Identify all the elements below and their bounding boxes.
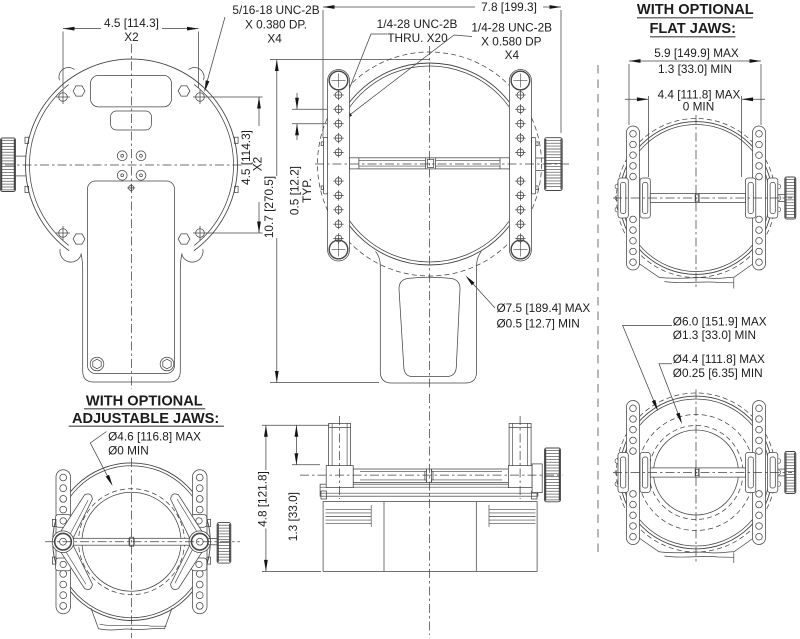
svg-text:Ø7.5 [189.4] MAX: Ø7.5 [189.4] MAX: [497, 301, 591, 315]
svg-text:ADJUSTABLE JAWS:: ADJUSTABLE JAWS:: [72, 411, 219, 427]
svg-text:1/4-28 UNC-2B: 1/4-28 UNC-2B: [471, 21, 552, 35]
svg-text:4.8 [121.8]: 4.8 [121.8]: [255, 471, 269, 527]
svg-text:5/16-18 UNC-2B: 5/16-18 UNC-2B: [232, 3, 319, 17]
svg-text:TYP.: TYP.: [300, 178, 314, 203]
svg-text:X 0.580 DP: X 0.580 DP: [481, 35, 541, 49]
svg-text:1/4-28 UNC-2B: 1/4-28 UNC-2B: [377, 17, 458, 31]
svg-text:10.7 [270.5]: 10.7 [270.5]: [262, 176, 276, 238]
svg-text:X2: X2: [124, 30, 138, 44]
svg-text:WITH OPTIONAL: WITH OPTIONAL: [637, 2, 754, 18]
svg-text:Ø4.6 [116.8] MAX: Ø4.6 [116.8] MAX: [108, 430, 201, 444]
svg-text:Ø0.5 [12.7] MIN: Ø0.5 [12.7] MIN: [497, 316, 580, 330]
svg-text:7.8 [199.3]: 7.8 [199.3]: [481, 0, 537, 14]
svg-text:Ø0 MIN: Ø0 MIN: [108, 444, 149, 458]
svg-text:Ø4.4 [111.8] MAX: Ø4.4 [111.8] MAX: [673, 352, 765, 366]
svg-text:THRU. X20: THRU. X20: [387, 31, 448, 45]
svg-text:Ø0.25 [6.35] MIN: Ø0.25 [6.35] MIN: [673, 366, 763, 380]
svg-text:X4: X4: [505, 48, 520, 62]
svg-text:FLAT JAWS:: FLAT JAWS:: [649, 21, 735, 37]
svg-text:4.5 [114.3]: 4.5 [114.3]: [104, 16, 159, 30]
svg-text:5.9 [149.9] MAX: 5.9 [149.9] MAX: [654, 46, 739, 60]
svg-text:Ø1.3 [33.0] MIN: Ø1.3 [33.0] MIN: [673, 328, 756, 342]
svg-text:1.3 [33.0]: 1.3 [33.0]: [286, 492, 300, 541]
svg-text:X4: X4: [267, 32, 282, 46]
svg-text:X2: X2: [251, 157, 265, 171]
svg-text:X 0.380 DP.: X 0.380 DP.: [245, 18, 307, 32]
svg-text:0 MIN: 0 MIN: [683, 100, 714, 114]
svg-text:1.3 [33.0] MIN: 1.3 [33.0] MIN: [658, 62, 732, 76]
svg-text:Ø6.0 [151.9] MAX: Ø6.0 [151.9] MAX: [673, 315, 767, 329]
svg-text:WITH OPTIONAL: WITH OPTIONAL: [86, 394, 203, 410]
